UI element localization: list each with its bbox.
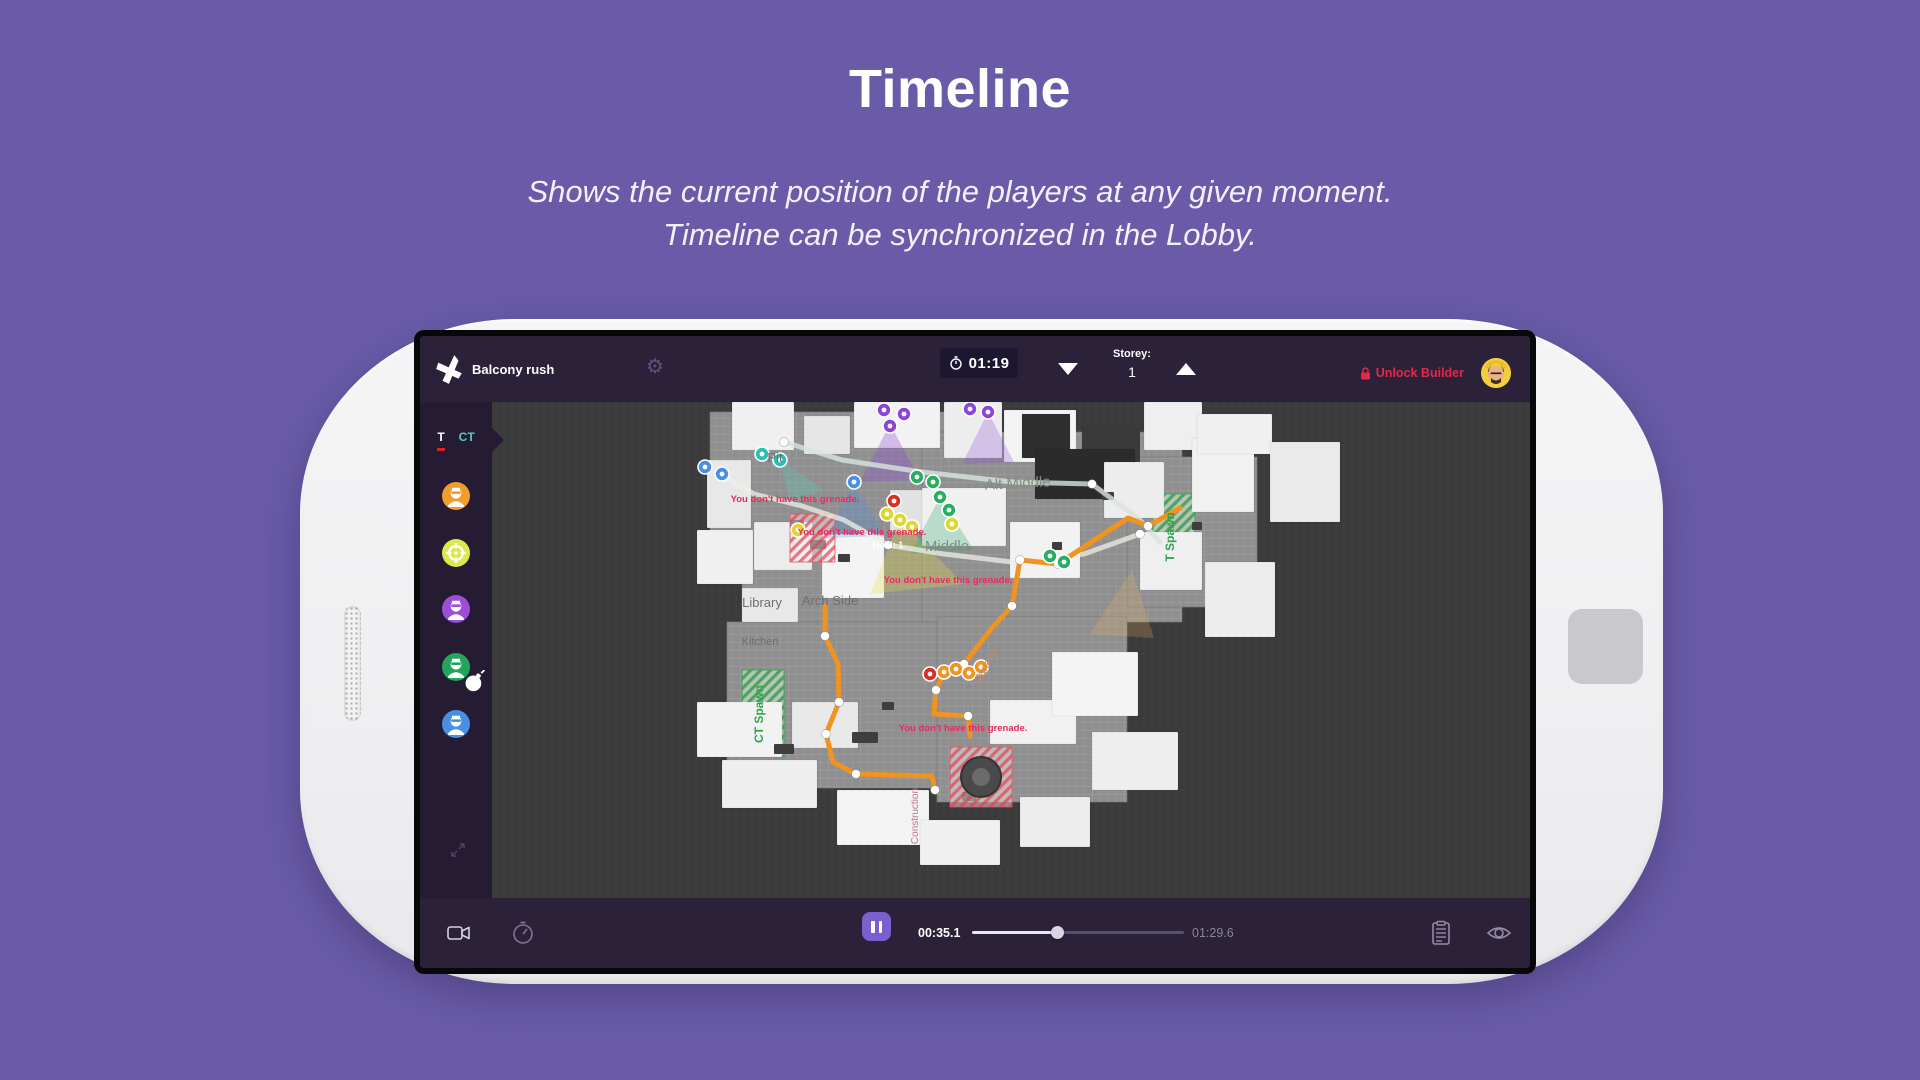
map-building bbox=[920, 820, 1000, 865]
map-area-label: Pit bbox=[767, 450, 783, 465]
round-timer-value: 01:19 bbox=[969, 355, 1010, 372]
map-building bbox=[697, 702, 782, 757]
player-marker-dot bbox=[942, 670, 947, 675]
grenade-warning-text: You don't have this grenade. bbox=[731, 494, 860, 505]
path-waypoint[interactable] bbox=[1016, 556, 1025, 565]
player-marker-dot bbox=[760, 452, 765, 457]
map-prop bbox=[1052, 542, 1062, 550]
path-waypoint[interactable] bbox=[780, 438, 789, 447]
map-building bbox=[1092, 732, 1178, 790]
player-marker-dot bbox=[928, 672, 933, 677]
map-area-label: Hold: 1 bbox=[873, 540, 904, 550]
unlock-builder-label: Unlock Builder bbox=[1376, 366, 1464, 380]
player-avatar-5[interactable] bbox=[442, 710, 470, 738]
map-overview[interactable]: PitAlt MiddleMiddleHold: 1LibraryArch Si… bbox=[492, 402, 1530, 898]
current-time: 00:35.1 bbox=[918, 926, 960, 940]
round-timer[interactable]: 01:19 bbox=[940, 348, 1018, 378]
subtitle-line-2: Timeline can be synchronized in the Lobb… bbox=[0, 213, 1920, 256]
sidebar-expand-chevron[interactable] bbox=[492, 428, 504, 452]
visibility-eye-icon[interactable] bbox=[1486, 920, 1512, 946]
player-marker-dot bbox=[888, 424, 893, 429]
player-marker-dot bbox=[986, 410, 991, 415]
phone-speaker-grille bbox=[344, 606, 361, 721]
map-building bbox=[1205, 562, 1275, 637]
map-prop bbox=[838, 554, 850, 562]
player-marker-dot bbox=[915, 475, 920, 480]
clock-icon bbox=[949, 356, 963, 370]
grenade-warning-text: You don't have this grenade. bbox=[798, 527, 927, 538]
app-logo-icon[interactable] bbox=[436, 353, 464, 385]
bombsite-fountain-center bbox=[972, 768, 990, 786]
player-marker-dot bbox=[954, 667, 959, 672]
tab-counter-terrorists[interactable]: CT bbox=[459, 430, 475, 451]
player-marker-dot bbox=[882, 408, 887, 413]
pause-button[interactable] bbox=[862, 912, 891, 941]
app-screen: Balcony rush ⚙ 01:19 Storey: 1 bbox=[420, 336, 1530, 968]
path-waypoint[interactable] bbox=[852, 770, 861, 779]
map-prop bbox=[774, 744, 794, 754]
player-marker-dot bbox=[703, 465, 708, 470]
player-marker-dot bbox=[968, 407, 973, 412]
storey-down-arrow[interactable] bbox=[1058, 363, 1078, 375]
map-building bbox=[1270, 442, 1340, 522]
map-area-label: Alt Middle bbox=[984, 473, 1051, 493]
player-marker-dot bbox=[947, 508, 952, 513]
storey-control: Storey: 1 bbox=[1096, 348, 1168, 380]
player-marker-dot bbox=[852, 480, 857, 485]
page-title: Timeline bbox=[0, 58, 1920, 120]
player-avatar-2[interactable] bbox=[442, 539, 470, 567]
player-marker-dot bbox=[1048, 554, 1053, 559]
player-marker-dot bbox=[885, 512, 890, 517]
team-sidebar: T CT bbox=[420, 402, 492, 898]
map-building bbox=[792, 702, 858, 748]
player-marker-dot bbox=[931, 480, 936, 485]
path-waypoint[interactable] bbox=[835, 698, 844, 707]
player-marker-dot bbox=[938, 495, 943, 500]
timeline-bar: 00:35.1 01:29.6 bbox=[420, 898, 1530, 968]
user-avatar-face bbox=[1481, 358, 1511, 388]
map-prop bbox=[852, 732, 878, 743]
map-prop bbox=[1192, 522, 1202, 530]
map-area-label: T Spawn bbox=[1163, 512, 1177, 561]
player-marker-dot bbox=[950, 522, 955, 527]
timeline-progress bbox=[972, 931, 1057, 934]
strategy-name[interactable]: Balcony rush bbox=[472, 362, 554, 377]
map-area-label: Construction bbox=[910, 788, 921, 844]
subtitle-line-1: Shows the current position of the player… bbox=[0, 170, 1920, 213]
player-marker-dot bbox=[720, 472, 725, 477]
user-avatar[interactable] bbox=[1481, 358, 1511, 388]
phone-home-button bbox=[1568, 609, 1643, 684]
map-building bbox=[1104, 462, 1164, 518]
map-building bbox=[722, 760, 817, 808]
map-area-label: Middle bbox=[925, 538, 969, 555]
player-marker-dot bbox=[967, 671, 972, 676]
player-avatar-3[interactable] bbox=[442, 595, 470, 623]
map-area-label: Library bbox=[742, 595, 782, 610]
app-top-bar: Balcony rush ⚙ 01:19 Storey: 1 bbox=[420, 336, 1530, 402]
storey-up-arrow[interactable] bbox=[1176, 363, 1196, 375]
bomb-carrier-icon bbox=[464, 670, 478, 684]
grenade-warning-text: You don't have this grenade. bbox=[884, 575, 1013, 586]
phone-screen-bezel: Balcony rush ⚙ 01:19 Storey: 1 bbox=[414, 330, 1536, 974]
player-marker-dot bbox=[898, 518, 903, 523]
path-waypoint[interactable] bbox=[932, 686, 941, 695]
unlock-builder-button[interactable]: Unlock Builder bbox=[1360, 366, 1464, 380]
path-waypoint[interactable] bbox=[1008, 602, 1017, 611]
map-prop bbox=[882, 702, 894, 710]
record-camera-icon[interactable] bbox=[446, 920, 472, 946]
map-canvas[interactable]: PitAlt MiddleMiddleHold: 1LibraryArch Si… bbox=[492, 402, 1530, 898]
path-waypoint[interactable] bbox=[1136, 530, 1145, 539]
path-waypoint[interactable] bbox=[821, 632, 830, 641]
map-building bbox=[1052, 652, 1138, 716]
path-waypoint[interactable] bbox=[1088, 480, 1097, 489]
lock-icon bbox=[1360, 367, 1371, 380]
settings-gear-icon[interactable]: ⚙ bbox=[646, 357, 664, 377]
map-area-label: Arch Side bbox=[802, 593, 858, 608]
path-waypoint[interactable] bbox=[1144, 522, 1153, 531]
path-waypoint[interactable] bbox=[822, 730, 831, 739]
timeline-slider[interactable] bbox=[972, 931, 1184, 934]
player-marker-dot bbox=[892, 499, 897, 504]
map-building bbox=[697, 530, 753, 584]
player-avatar-1[interactable] bbox=[442, 482, 470, 510]
path-waypoint[interactable] bbox=[931, 786, 940, 795]
grenade-warning-text: You don't have this grenade. bbox=[899, 723, 1028, 734]
storey-value: 1 bbox=[1096, 364, 1168, 380]
page-subtitle: Shows the current position of the player… bbox=[0, 170, 1920, 256]
fullscreen-expand-icon[interactable] bbox=[450, 842, 466, 858]
map-building bbox=[1197, 414, 1272, 454]
timeline-slider-thumb[interactable] bbox=[1051, 926, 1064, 939]
team-tabs: T CT bbox=[420, 430, 492, 451]
map-area-label: Kitchen bbox=[742, 636, 779, 648]
total-time: 01:29.6 bbox=[1192, 926, 1234, 940]
stopwatch-icon[interactable] bbox=[510, 920, 536, 946]
player-marker-dot bbox=[1062, 560, 1067, 565]
player-marker-dot bbox=[902, 412, 907, 417]
notes-clipboard-icon[interactable] bbox=[1428, 920, 1454, 946]
path-waypoint[interactable] bbox=[964, 712, 973, 721]
tab-terrorists[interactable]: T bbox=[437, 430, 444, 451]
map-building bbox=[1020, 797, 1090, 847]
storey-label: Storey: bbox=[1096, 348, 1168, 360]
danger-zone bbox=[790, 514, 835, 562]
phone-mockup: Balcony rush ⚙ 01:19 Storey: 1 bbox=[300, 319, 1663, 984]
player-avatar-4[interactable] bbox=[442, 653, 470, 681]
map-area-label: CT Spawn bbox=[752, 685, 766, 743]
